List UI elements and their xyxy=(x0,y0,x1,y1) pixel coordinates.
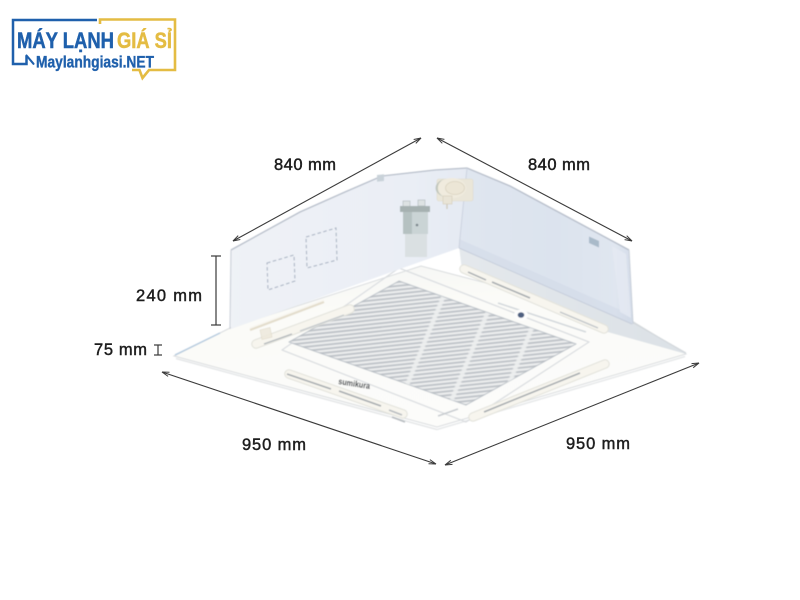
svg-text:MÁY LẠNH: MÁY LẠNH xyxy=(17,28,114,53)
svg-text:840 mm: 840 mm xyxy=(274,156,336,174)
svg-text:950 mm: 950 mm xyxy=(242,436,306,454)
svg-text:840 mm: 840 mm xyxy=(528,156,590,174)
svg-text:950 mm: 950 mm xyxy=(566,435,630,453)
svg-text:240 mm: 240 mm xyxy=(136,287,202,305)
svg-text:75 mm: 75 mm xyxy=(94,341,147,359)
svg-text:Maylanhgiasi.NET: Maylanhgiasi.NET xyxy=(36,54,154,72)
svg-text:GIÁ SỈ: GIÁ SỈ xyxy=(117,28,172,53)
